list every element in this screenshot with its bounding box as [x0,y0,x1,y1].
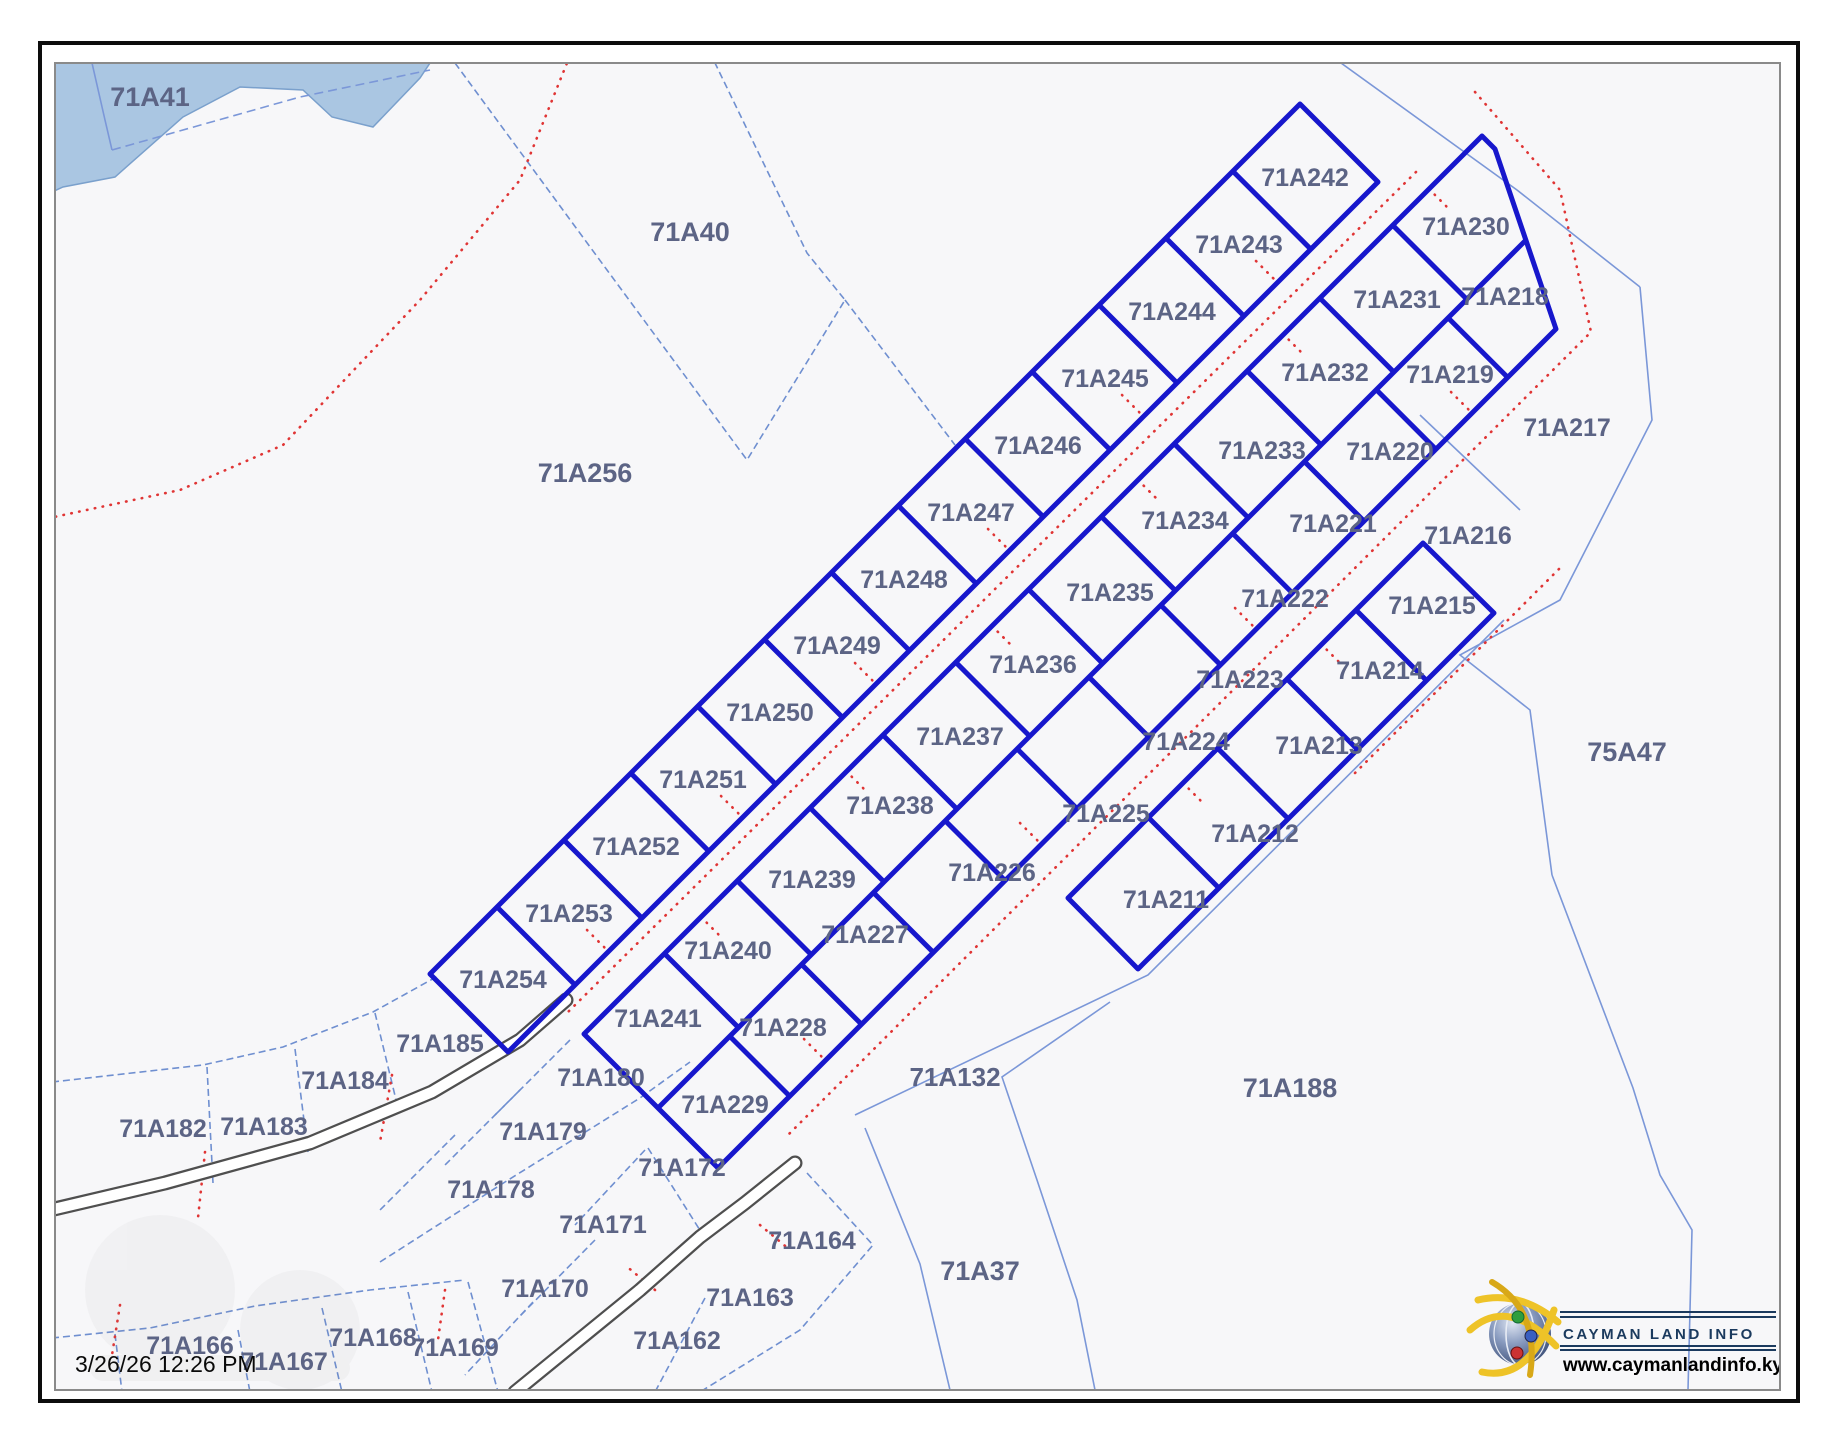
parcel-label-71A240: 71A240 [684,937,772,965]
map-canvas[interactable]: 71A4171A4071A25675A4771A18871A13271A3771… [0,0,1843,1445]
parcel-label-71A180: 71A180 [557,1064,645,1092]
parcel-label-71A232: 71A232 [1281,359,1369,387]
parcel-label-71A241: 71A241 [614,1005,702,1033]
parcel-label-71A248: 71A248 [860,566,948,594]
parcel-label-71A223: 71A223 [1196,666,1284,694]
parcel-label-71A252: 71A252 [592,833,680,861]
parcel-label-71A185: 71A185 [396,1030,484,1058]
parcel-label-71A184: 71A184 [301,1067,389,1095]
parcel-label-71A172: 71A172 [638,1154,726,1182]
parcel-label-71A183: 71A183 [220,1113,308,1141]
parcel-label-71A224: 71A224 [1142,728,1230,756]
parcel-label-71A236: 71A236 [989,651,1077,679]
parcel-label-71A246: 71A246 [994,432,1082,460]
parcel-label-71A211: 71A211 [1123,886,1209,914]
parcel-label-71A171: 71A171 [559,1211,647,1239]
parcel-label-71A216: 71A216 [1424,522,1512,550]
parcel-label-71A214: 71A214 [1336,657,1424,685]
parcel-label-71A219: 71A219 [1406,361,1494,389]
parcel-label-71A162: 71A162 [633,1327,721,1355]
parcel-label-71A239: 71A239 [768,866,856,894]
parcel-label-71A41: 71A41 [110,82,190,112]
parcel-label-71A237: 71A237 [916,723,1004,751]
parcel-label-71A188: 71A188 [1243,1073,1338,1103]
parcel-label-71A217: 71A217 [1523,414,1611,442]
parcel-label-71A231: 71A231 [1353,286,1441,314]
parcel-label-71A163: 71A163 [706,1284,794,1312]
parcel-label-71A225: 71A225 [1062,800,1150,828]
parcel-label-71A247: 71A247 [927,499,1015,527]
parcel-label-71A40: 71A40 [650,217,730,247]
parcel-label-71A234: 71A234 [1141,507,1229,535]
parcel-label-71A242: 71A242 [1261,164,1349,192]
parcel-label-71A244: 71A244 [1128,298,1216,326]
parcel-label-71A37: 71A37 [940,1256,1020,1286]
parcel-label-71A253: 71A253 [525,900,613,928]
parcel-label-71A249: 71A249 [793,632,881,660]
parcel-label-71A256: 71A256 [538,458,633,488]
parcel-label-71A228: 71A228 [739,1014,827,1042]
parcel-label-71A178: 71A178 [447,1176,535,1204]
parcel-label-71A170: 71A170 [501,1275,589,1303]
parcel-label-71A221: 71A221 [1289,510,1377,538]
parcel-label-71A213: 71A213 [1275,732,1363,760]
parcel-label-71A215: 71A215 [1388,592,1476,620]
parcel-label-71A243: 71A243 [1195,231,1283,259]
parcel-label-71A226: 71A226 [948,859,1036,887]
parcel-label-71A220: 71A220 [1346,438,1434,466]
logo-name: CAYMAN LAND INFO [1563,1326,1755,1343]
parcel-label-71A233: 71A233 [1218,437,1306,465]
parcel-label-71A227: 71A227 [821,921,909,949]
parcel-label-71A251: 71A251 [659,766,747,794]
parcel-label-71A238: 71A238 [846,792,934,820]
logo-url: www.caymanlandinfo.ky [1562,1355,1783,1376]
parcel-label-71A218: 71A218 [1461,283,1549,311]
parcel-label-71A222: 71A222 [1241,585,1329,613]
parcel-label-71A212: 71A212 [1211,820,1299,848]
parcel-label-71A169: 71A169 [411,1334,499,1362]
cadastral-map-viewer: 71A4171A4071A25675A4771A18871A13271A3771… [0,0,1843,1445]
timestamp: 3/26/26 12:26 PM [75,1351,257,1377]
parcel-label-71A245: 71A245 [1061,365,1149,393]
parcel-label-71A182: 71A182 [119,1115,207,1143]
parcel-label-71A168: 71A168 [329,1324,417,1352]
parcel-label-71A164: 71A164 [768,1227,856,1255]
parcel-label-71A179: 71A179 [499,1118,587,1146]
parcel-label-71A254: 71A254 [459,966,547,994]
parcel-label-71A250: 71A250 [726,699,814,727]
parcel-label-71A229: 71A229 [681,1091,769,1119]
parcel-label-71A235: 71A235 [1066,579,1154,607]
parcel-label-75A47: 75A47 [1587,737,1667,767]
parcel-label-71A230: 71A230 [1422,213,1510,241]
parcel-label-71A132: 71A132 [909,1062,1000,1092]
